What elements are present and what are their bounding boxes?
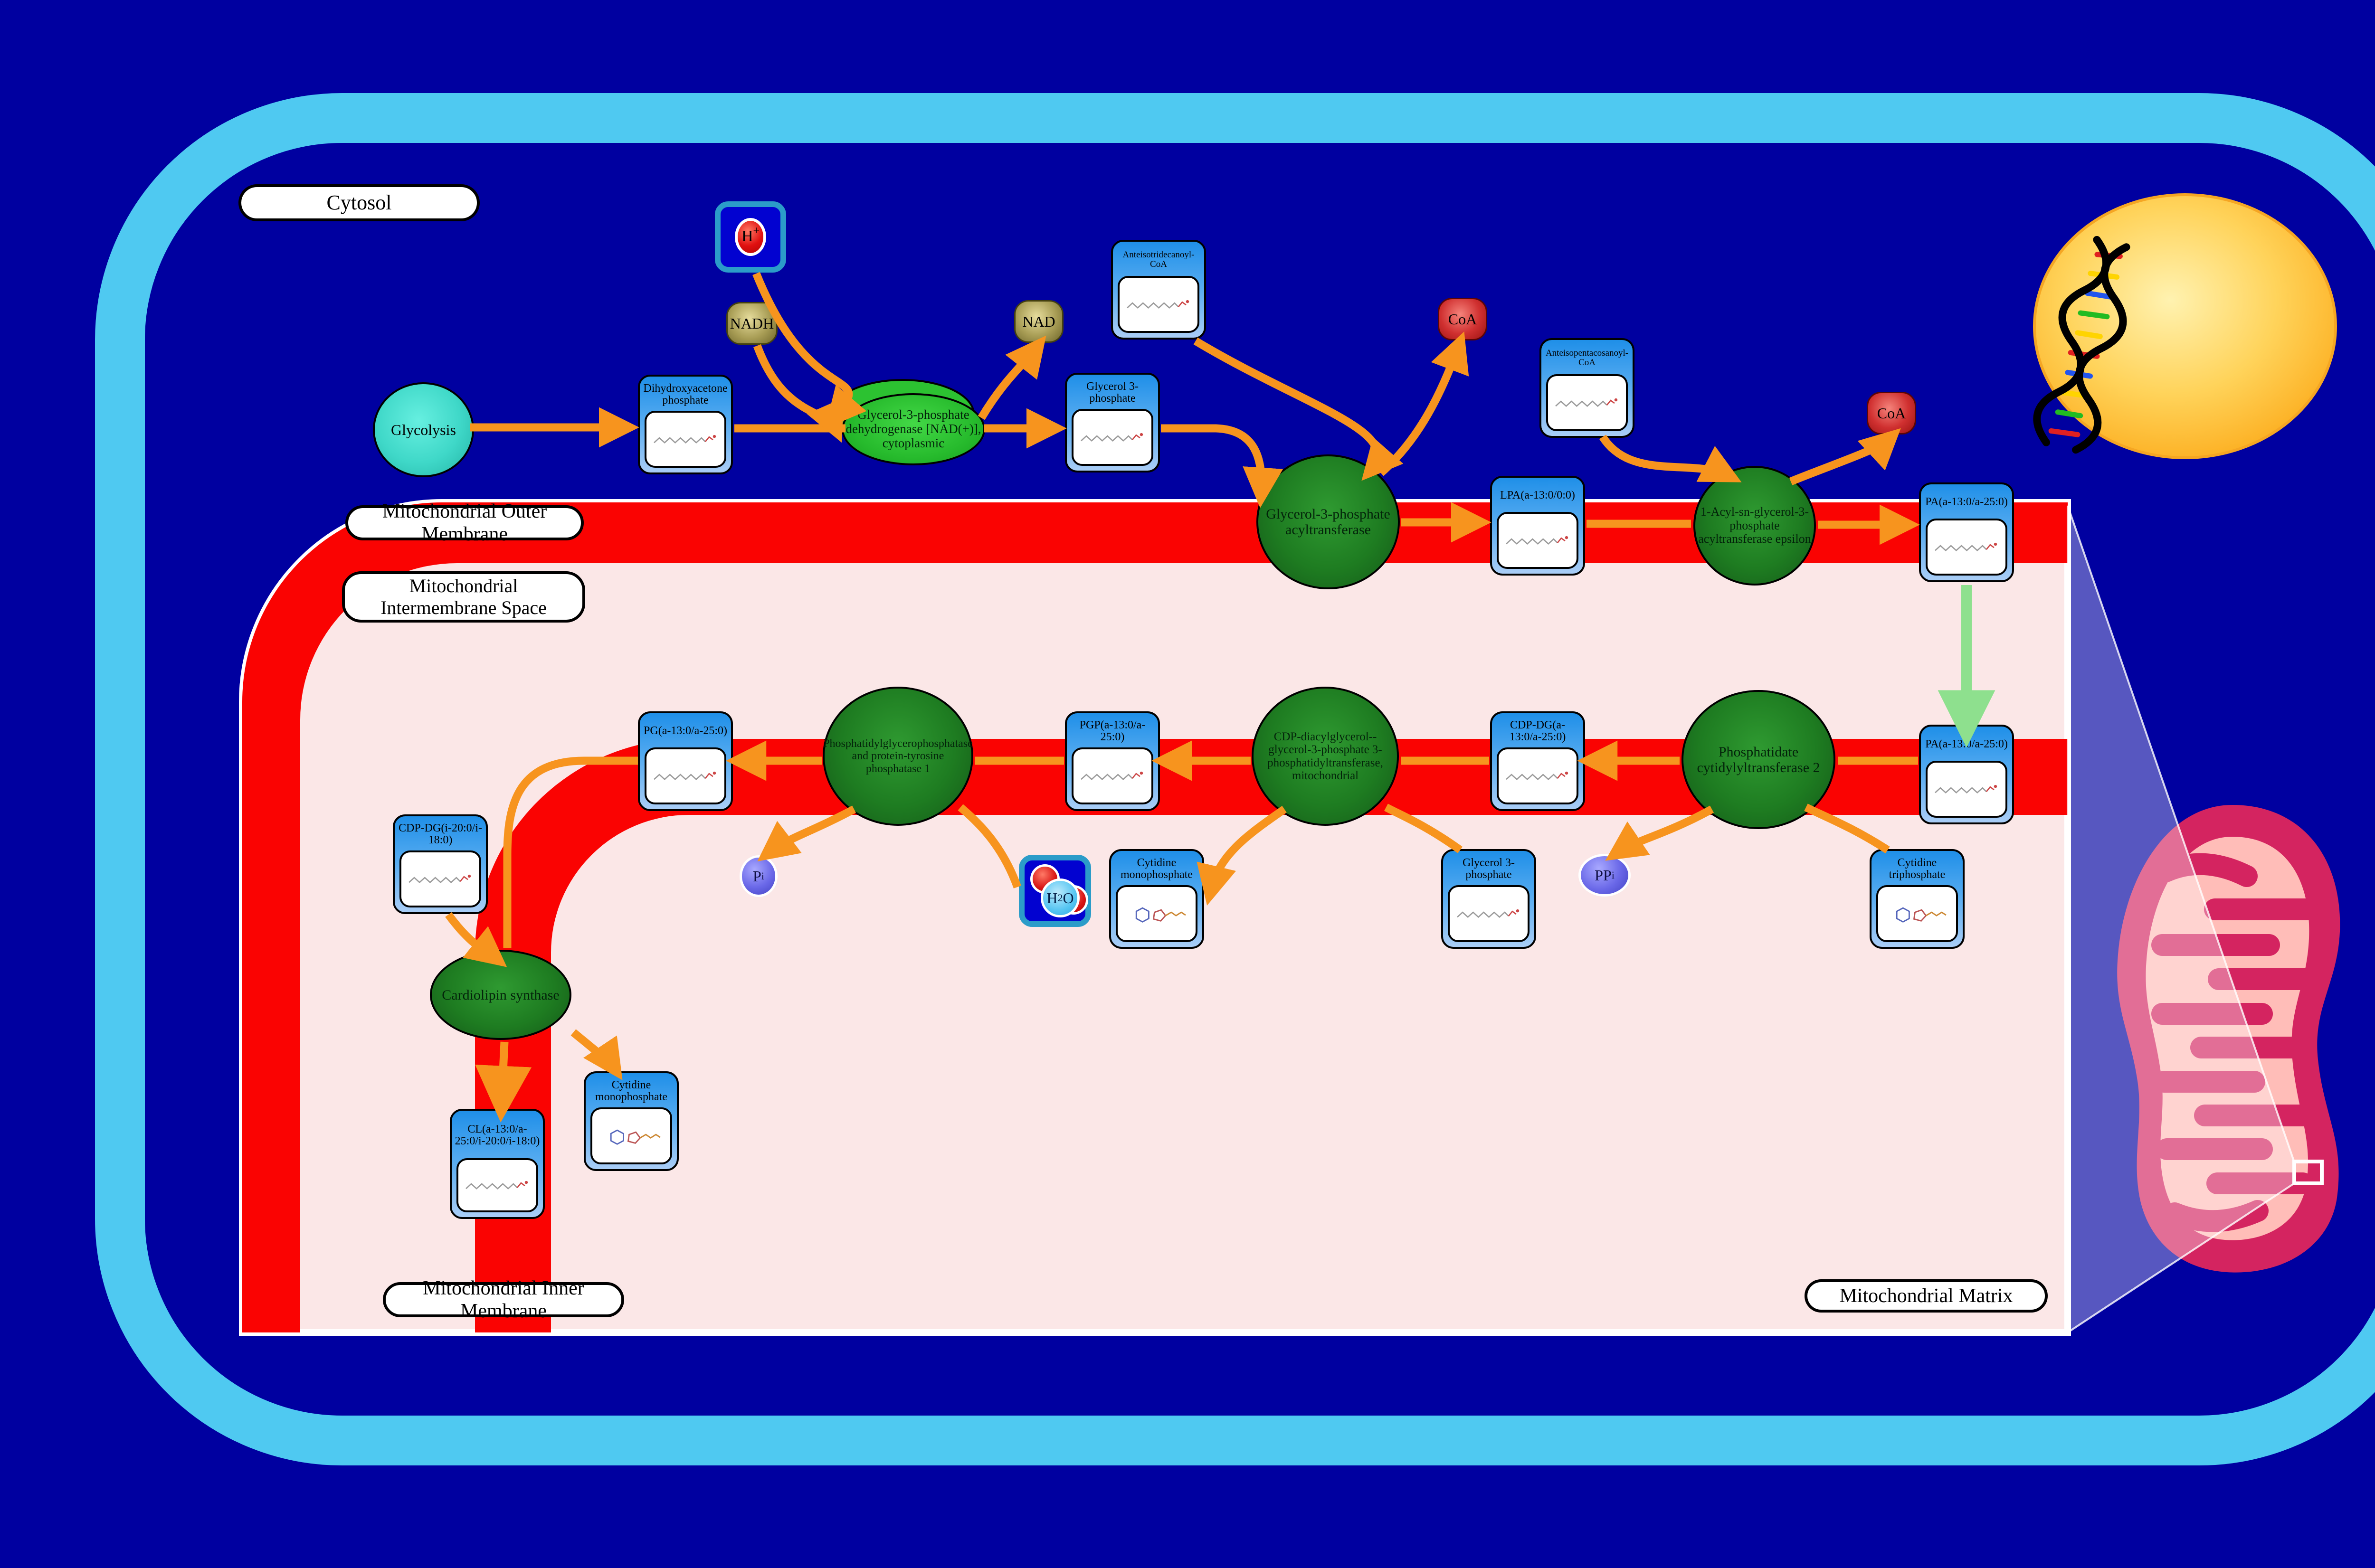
enzyme-gpat: Glycerol-3-phosphate acyltransferase (1256, 454, 1400, 589)
enzyme-pgp-phosphatase: Phosphatidylglycerophosphatase and prote… (823, 687, 973, 826)
phosphate-node: Pi (740, 855, 778, 897)
water-molecule-icon: H2O (1041, 878, 1080, 917)
molecule-structure-icon (1118, 276, 1199, 333)
matrix-label: Mitochondrial Matrix (1839, 1285, 2013, 1307)
pyrophosphate-node: PPi (1578, 854, 1631, 897)
water-box: H2O (1019, 855, 1091, 927)
enzyme-pgpase-label: Phosphatidylglycerophosphatase and prote… (823, 737, 973, 775)
proton-symbol: H (741, 227, 753, 246)
region-label-matrix: Mitochondrial Matrix (1805, 1279, 2048, 1313)
molecule-structure-icon (1926, 519, 2007, 576)
cell-membrane-border (95, 93, 2375, 1465)
coa-label: CoA (1877, 405, 1906, 422)
metabolite-box-cardiolipin: CL(a-13:0/a-25:0/i-20:0/i-18:0) (450, 1109, 545, 1219)
ppi-sub: i (1612, 873, 1615, 878)
intermembrane-space-label: Mitochondrial Intermembrane Space (351, 575, 576, 619)
metabolite-title-cdpdg-i: CDP-DG(i-20:0/i-18:0) (395, 816, 486, 850)
enzyme-pgs-label: CDP-diacylglycerol--glycerol-3-phosphate… (1256, 730, 1394, 783)
glycolysis-node: Glycolysis (373, 382, 474, 477)
proton-charge: + (753, 227, 760, 234)
metabolite-title-cmp-matrix: Cytidine monophosphate (1111, 851, 1202, 884)
enzyme-pgp-synthase: CDP-diacylglycerol--glycerol-3-phosphate… (1252, 687, 1399, 826)
proton-icon: H+ (735, 218, 766, 256)
nad-node: NAD (1014, 300, 1064, 343)
molecule-structure-icon (1116, 885, 1197, 942)
metabolite-box-cdpdg-i: CDP-DG(i-20:0/i-18:0) (393, 814, 488, 914)
nadh-node: NADH (726, 302, 778, 345)
region-label-inner-membrane: Mitochondrial Inner Membrane (383, 1282, 624, 1317)
pi-label: P (753, 868, 761, 885)
metabolite-title-ctp: Cytidine triphosphate (1871, 851, 1963, 884)
metabolite-box-pgp: PGP(a-13:0/a-25:0) (1065, 711, 1160, 811)
enzyme-agpat-epsilon: 1-Acyl-sn-glycerol-3-phosphate acyltrans… (1693, 466, 1816, 586)
metabolite-box-ctp: Cytidine triphosphate (1870, 849, 1965, 949)
metabolite-box-pa-inner: PA(a-13:0/a-25:0) (1919, 725, 2014, 824)
metabolite-title-dhap: Dihydroxyacetone phosphate (640, 377, 731, 410)
metabolite-title-pgp: PGP(a-13:0/a-25:0) (1067, 713, 1158, 746)
molecule-structure-icon (1497, 747, 1578, 804)
outer-membrane-label: Mitochondrial Outer Membrane (355, 500, 574, 546)
nadh-label: NADH (730, 315, 774, 332)
coa-node-agpat: CoA (1867, 392, 1916, 435)
metabolite-box-g3p-top: Glycerol 3-phosphate (1065, 373, 1160, 472)
molecule-structure-icon (645, 411, 726, 468)
inner-membrane-label: Mitochondrial Inner Membrane (392, 1277, 615, 1323)
metabolite-title-g3p-top: Glycerol 3-phosphate (1067, 375, 1158, 408)
enzyme-agpat-label: 1-Acyl-sn-glycerol-3-phosphate acyltrans… (1698, 505, 1811, 546)
metabolite-box-cdpdg-a: CDP-DG(a-13:0/a-25:0) (1490, 711, 1585, 811)
molecule-structure-icon (1497, 512, 1578, 569)
water-2: 2 (1058, 896, 1063, 900)
enzyme-cls-label: Cardiolipin synthase (442, 987, 559, 1003)
metabolite-box-cmp-cls: Cytidine monophosphate (584, 1071, 679, 1171)
metabolite-title-cl: CL(a-13:0/a-25:0/i-20:0/i-18:0) (452, 1111, 543, 1157)
metabolite-box-pa-outer: PA(a-13:0/a-25:0) (1919, 482, 2014, 582)
pathway-diagram: Cytosol Mitochondrial Outer Membrane Mit… (0, 0, 2375, 1568)
molecule-structure-icon (590, 1107, 672, 1164)
enzyme-gpat-label: Glycerol-3-phosphate acyltransferase (1263, 506, 1393, 538)
metabolite-box-pg: PG(a-13:0/a-25:0) (638, 711, 733, 811)
molecule-structure-icon (1072, 409, 1153, 466)
region-label-outer-membrane: Mitochondrial Outer Membrane (345, 505, 584, 540)
metabolite-title-cmp-cls: Cytidine monophosphate (586, 1073, 677, 1106)
enzyme-gpd-cytoplasmic: Glycerol-3-phosphate dehydrogenase [NAD(… (842, 393, 985, 465)
glycolysis-label: Glycolysis (391, 421, 456, 439)
enzyme-gpd-label: Glycerol-3-phosphate dehydrogenase [NAD(… (845, 408, 981, 450)
enzyme-pct2-label: Phosphatidate cytidylyltransferase 2 (1688, 744, 1829, 775)
enzyme-cardiolipin-synthase: Cardiolipin synthase (430, 950, 571, 1040)
region-label-cytosol: Cytosol (238, 184, 480, 221)
metabolite-title-pg: PG(a-13:0/a-25:0) (640, 713, 731, 746)
metabolite-box-lpa: LPA(a-13:0/0:0) (1490, 476, 1585, 576)
metabolite-box-anteisopentacosanoyl-coa: Anteisopentacosanoyl-CoA (1539, 338, 1634, 438)
metabolite-box-anteisotridecanoyl-coa: Anteisotridecanoyl-CoA (1111, 240, 1206, 340)
metabolite-box-cmp-matrix: Cytidine monophosphate (1109, 849, 1204, 949)
metabolite-title-g3p-matrix: Glycerol 3-phosphate (1443, 851, 1534, 884)
metabolite-title-pa-outer: PA(a-13:0/a-25:0) (1921, 484, 2012, 518)
proton-box: H+ (715, 201, 786, 273)
molecule-structure-icon (1926, 761, 2007, 818)
metabolite-title-a25coa: Anteisopentacosanoyl-CoA (1541, 340, 1633, 373)
coa-label: CoA (1448, 311, 1477, 328)
molecule-structure-icon (399, 850, 481, 907)
pi-sub: i (761, 874, 764, 878)
region-label-intermembrane-space: Mitochondrial Intermembrane Space (342, 571, 585, 623)
metabolite-title-pa-inner: PA(a-13:0/a-25:0) (1921, 727, 2012, 760)
metabolite-title-a13coa: Anteisotridecanoyl-CoA (1113, 242, 1204, 275)
metabolite-title-cdpdg-a: CDP-DG(a-13:0/a-25:0) (1492, 713, 1583, 746)
water-h: H (1046, 889, 1057, 907)
metabolite-box-dhap: Dihydroxyacetone phosphate (638, 375, 733, 474)
ppi-label: PP (1595, 867, 1612, 884)
metabolite-title-lpa: LPA(a-13:0/0:0) (1492, 478, 1583, 511)
coa-node-gpat: CoA (1438, 298, 1487, 340)
enzyme-phosphatidate-cytidylyltransferase-2: Phosphatidate cytidylyltransferase 2 (1681, 690, 1835, 829)
metabolite-box-g3p-matrix: Glycerol 3-phosphate (1441, 849, 1536, 949)
molecule-structure-icon (645, 747, 726, 804)
molecule-structure-icon (1072, 747, 1153, 804)
water-o: O (1063, 889, 1074, 907)
cytosol-label: Cytosol (327, 191, 392, 215)
molecule-structure-icon (456, 1158, 538, 1212)
molecule-structure-icon (1876, 885, 1958, 942)
molecule-structure-icon (1546, 374, 1628, 431)
molecule-structure-icon (1448, 885, 1529, 942)
nad-label: NAD (1022, 313, 1055, 331)
